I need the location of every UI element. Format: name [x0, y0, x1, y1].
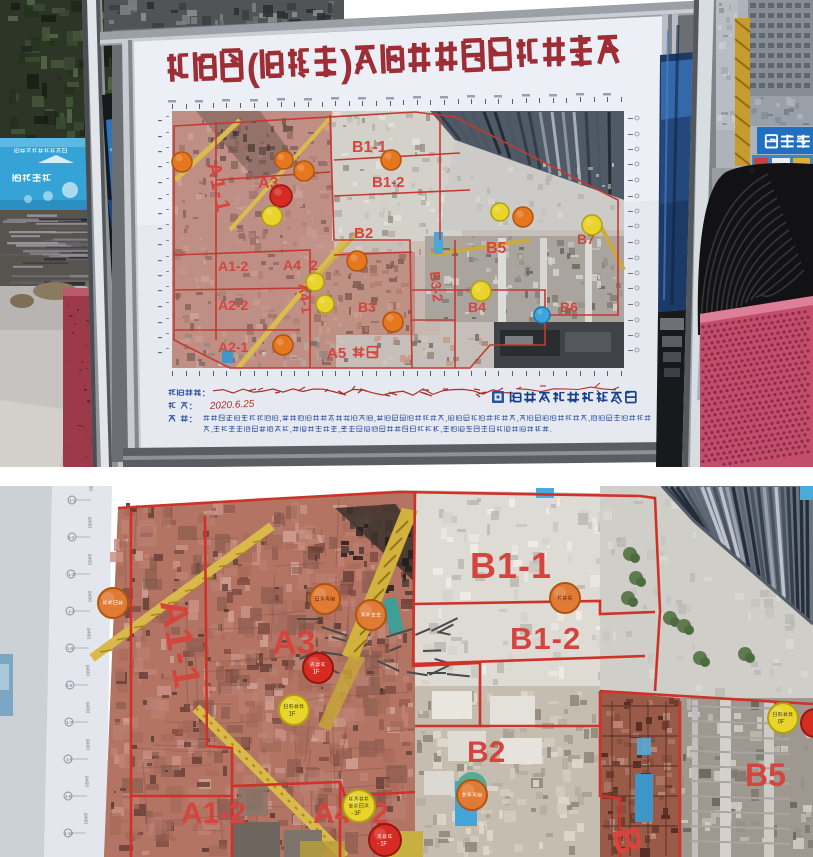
svg-text:A4: A4: [283, 257, 301, 273]
svg-text:1-6: 1-6: [66, 683, 73, 688]
svg-text:8400: 8400: [87, 486, 93, 491]
svg-text:): ): [340, 43, 354, 85]
svg-text:B1-1: B1-1: [352, 139, 387, 156]
svg-text:,: ,: [440, 425, 442, 434]
svg-text:8400: 8400: [82, 813, 88, 825]
svg-text:1-2: 1-2: [68, 535, 75, 540]
svg-text:B5: B5: [486, 240, 507, 257]
svg-text:8400: 8400: [86, 517, 92, 529]
svg-text:1-1: 1-1: [69, 498, 76, 503]
svg-text:1-9: 1-9: [65, 794, 72, 799]
svg-text:B2: B2: [467, 736, 505, 769]
svg-text:-: -: [351, 811, 353, 817]
svg-text:8400: 8400: [86, 554, 92, 566]
svg-text:,: ,: [588, 414, 590, 423]
svg-text:1-3: 1-3: [68, 572, 75, 577]
svg-text:1-10: 1-10: [64, 831, 74, 836]
svg-text:1-5: 1-5: [67, 646, 74, 651]
svg-text:,: ,: [374, 414, 376, 423]
svg-text:1-7: 1-7: [66, 720, 73, 725]
svg-text:1-4: 1-4: [68, 609, 75, 614]
svg-text:：: ：: [189, 402, 197, 411]
svg-text:B5: B5: [745, 757, 786, 793]
svg-text:8400: 8400: [84, 702, 90, 714]
svg-text:F: F: [383, 842, 387, 848]
svg-text:：: ：: [189, 415, 197, 424]
svg-text:F: F: [357, 811, 361, 817]
svg-text:1-8: 1-8: [66, 757, 73, 762]
svg-text:B1-2: B1-2: [510, 621, 581, 656]
svg-text:,: ,: [290, 425, 292, 434]
svg-text:A1-2: A1-2: [181, 797, 246, 830]
svg-text:F: F: [781, 720, 785, 726]
svg-text:8400: 8400: [84, 665, 90, 677]
svg-text:B1-2: B1-2: [372, 174, 405, 191]
svg-text:F: F: [316, 670, 320, 676]
svg-text:8400: 8400: [84, 739, 90, 751]
svg-text:,: ,: [280, 414, 282, 423]
svg-text:,: ,: [517, 414, 519, 423]
svg-text:,: ,: [338, 425, 340, 434]
svg-text:,: ,: [445, 414, 447, 423]
svg-text:B3-2: B3-2: [427, 271, 446, 303]
svg-text:F: F: [292, 712, 296, 718]
svg-text:B1-1: B1-1: [470, 545, 552, 586]
svg-text:(: (: [246, 47, 261, 90]
svg-text:A2-1: A2-1: [218, 339, 249, 355]
svg-text:A2-2: A2-2: [218, 297, 249, 313]
svg-text:B6: B6: [560, 299, 578, 315]
svg-text:A5: A5: [327, 345, 346, 362]
svg-text:.: .: [550, 425, 552, 434]
svg-text:8400: 8400: [83, 776, 89, 788]
svg-text:B3: B3: [358, 299, 376, 315]
svg-text:-: -: [377, 842, 379, 848]
svg-text:B2: B2: [354, 225, 373, 242]
svg-text:8400: 8400: [86, 591, 92, 603]
svg-text:8400: 8400: [85, 628, 91, 640]
svg-text:：: ：: [202, 389, 210, 398]
svg-text:,: ,: [211, 425, 213, 434]
svg-text:2: 2: [310, 257, 318, 273]
svg-text:A1-2: A1-2: [218, 258, 249, 274]
